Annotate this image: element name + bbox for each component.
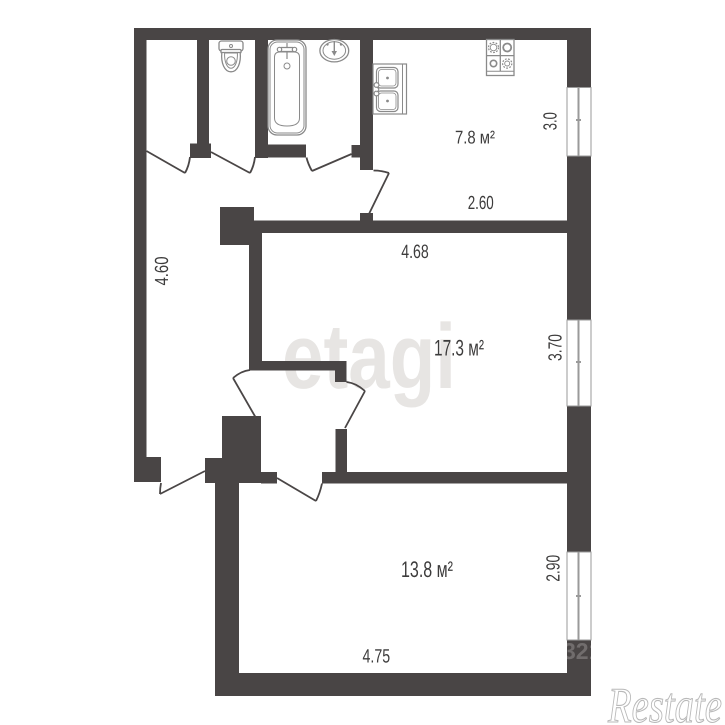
- svg-text:3.0: 3.0: [541, 112, 562, 130]
- svg-text:2.90: 2.90: [543, 555, 564, 582]
- svg-text:etagi: etagi: [282, 306, 456, 408]
- svg-text:3.70: 3.70: [545, 334, 566, 361]
- svg-text:4.60: 4.60: [152, 257, 173, 286]
- svg-text:4.75: 4.75: [363, 646, 391, 667]
- svg-text:7.8 м²: 7.8 м²: [455, 127, 495, 148]
- svg-text:Restate: Restate: [607, 677, 722, 725]
- svg-text:321: 321: [563, 638, 602, 664]
- svg-text:4.68: 4.68: [401, 242, 429, 263]
- svg-text:2.60: 2.60: [468, 193, 494, 214]
- svg-text:17.3 м²: 17.3 м²: [434, 335, 484, 360]
- svg-text:13.8 м²: 13.8 м²: [401, 557, 453, 582]
